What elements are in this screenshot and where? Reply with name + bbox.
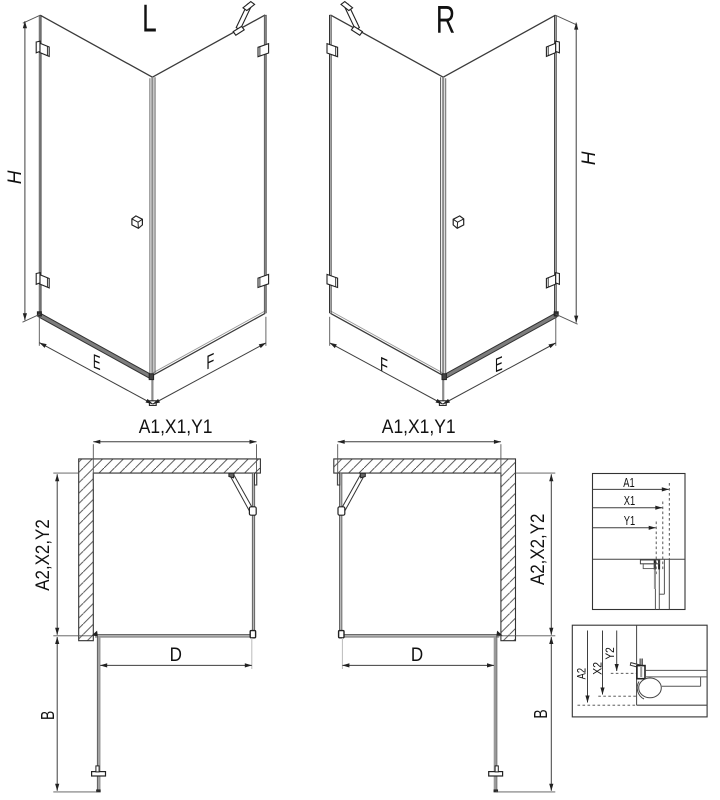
svg-text:Y1: Y1 (624, 514, 635, 528)
svg-text:D: D (411, 644, 423, 666)
svg-text:H: H (5, 170, 26, 184)
svg-text:A1,X1,Y1: A1,X1,Y1 (382, 417, 456, 438)
svg-text:A2: A2 (575, 668, 589, 680)
svg-text:X1: X1 (624, 494, 635, 508)
svg-text:B: B (530, 709, 551, 718)
svg-text:D: D (170, 644, 182, 666)
svg-text:H: H (579, 151, 600, 165)
svg-text:A2,X2,Y2: A2,X2,Y2 (33, 519, 54, 591)
svg-text:L: L (142, 0, 157, 40)
svg-text:A1: A1 (623, 476, 634, 490)
svg-text:E: E (495, 352, 503, 377)
svg-text:B: B (37, 711, 58, 720)
svg-text:Y2: Y2 (603, 647, 617, 660)
svg-text:E: E (93, 350, 101, 375)
svg-text:F: F (380, 353, 388, 378)
svg-text:A2,X2,Y2: A2,X2,Y2 (528, 514, 549, 586)
svg-text:A1,X1,Y1: A1,X1,Y1 (139, 417, 213, 438)
svg-text:R: R (436, 0, 455, 42)
svg-text:X2: X2 (590, 662, 604, 675)
svg-text:F: F (206, 349, 214, 374)
